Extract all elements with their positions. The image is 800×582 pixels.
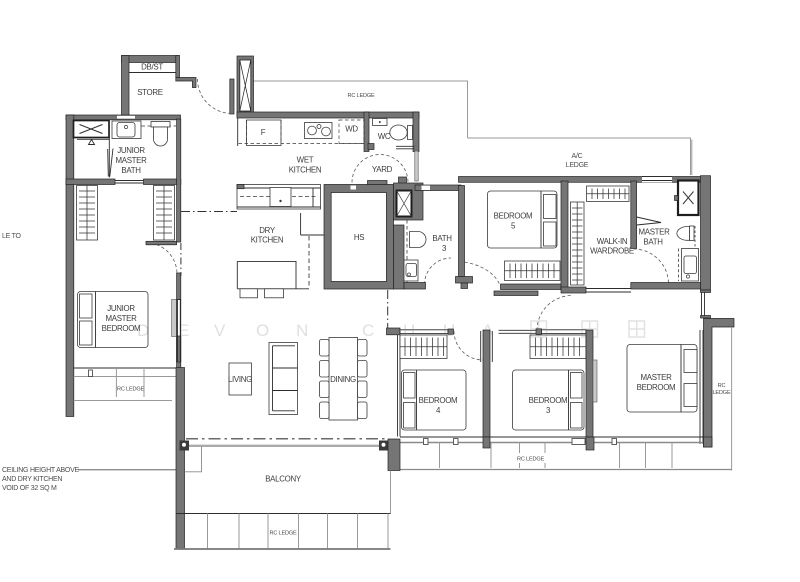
svg-text:MASTER: MASTER	[638, 228, 670, 237]
svg-text:WC: WC	[378, 132, 391, 141]
svg-text:DB/ST: DB/ST	[141, 63, 163, 72]
svg-text:MASTER: MASTER	[105, 314, 137, 323]
svg-text:DINING: DINING	[330, 375, 356, 384]
svg-text:JUNIOR: JUNIOR	[107, 304, 135, 313]
svg-text:JUNIOR: JUNIOR	[117, 146, 145, 155]
svg-text:F: F	[261, 128, 266, 137]
svg-text:LIVING: LIVING	[228, 375, 252, 384]
svg-text:BEDROOM: BEDROOM	[637, 383, 676, 392]
svg-text:BEDROOM: BEDROOM	[419, 396, 458, 405]
svg-text:BEDROOM: BEDROOM	[529, 396, 568, 405]
svg-text:E: E	[178, 321, 189, 340]
svg-text:BEDROOM: BEDROOM	[102, 324, 141, 333]
svg-text:BEDROOM: BEDROOM	[494, 212, 533, 221]
svg-text:BALCONY: BALCONY	[265, 475, 302, 484]
svg-text:H: H	[403, 321, 415, 340]
svg-text:BATH: BATH	[432, 234, 452, 243]
svg-text:V: V	[214, 321, 226, 340]
svg-text:BATH: BATH	[121, 166, 141, 175]
svg-text:DRY: DRY	[259, 226, 276, 235]
svg-text:VOID OF 32 SQ M: VOID OF 32 SQ M	[2, 485, 57, 492]
svg-text:RC LEDGE: RC LEDGE	[117, 387, 144, 393]
svg-text:A: A	[482, 321, 494, 340]
svg-text:CEILING HEIGHT ABOVE: CEILING HEIGHT ABOVE	[2, 467, 80, 474]
svg-text:WET: WET	[297, 156, 314, 165]
svg-text:KITCHEN: KITCHEN	[251, 236, 284, 245]
svg-text:WD: WD	[345, 125, 358, 134]
svg-text:LE TO: LE TO	[2, 233, 22, 240]
svg-text:HS: HS	[354, 233, 364, 242]
svg-text:D: D	[137, 321, 149, 340]
svg-text:C: C	[362, 321, 374, 340]
svg-text:MASTER: MASTER	[640, 373, 672, 382]
svg-text:BATH: BATH	[643, 238, 663, 247]
svg-text:RC LEDGE: RC LEDGE	[348, 93, 375, 99]
svg-text:A/C: A/C	[572, 153, 583, 160]
svg-text:O: O	[256, 321, 269, 340]
svg-text:RC LEDGE: RC LEDGE	[517, 457, 544, 463]
svg-text:LEDGE: LEDGE	[713, 390, 731, 396]
svg-text:STORE: STORE	[137, 88, 163, 97]
svg-text:N: N	[296, 321, 308, 340]
svg-text:KITCHEN: KITCHEN	[289, 166, 322, 175]
svg-text:RC LEDGE: RC LEDGE	[270, 531, 297, 537]
svg-text:YARD: YARD	[372, 165, 393, 174]
svg-text:MASTER: MASTER	[115, 156, 147, 165]
svg-text:RC: RC	[718, 383, 726, 389]
svg-text:U: U	[443, 321, 455, 340]
svg-text:WARDROBE: WARDROBE	[590, 247, 634, 256]
svg-text:LEDGE: LEDGE	[566, 162, 589, 169]
svg-text:WALK-IN: WALK-IN	[597, 237, 628, 246]
svg-text:AND DRY KITCHEN: AND DRY KITCHEN	[2, 476, 62, 483]
